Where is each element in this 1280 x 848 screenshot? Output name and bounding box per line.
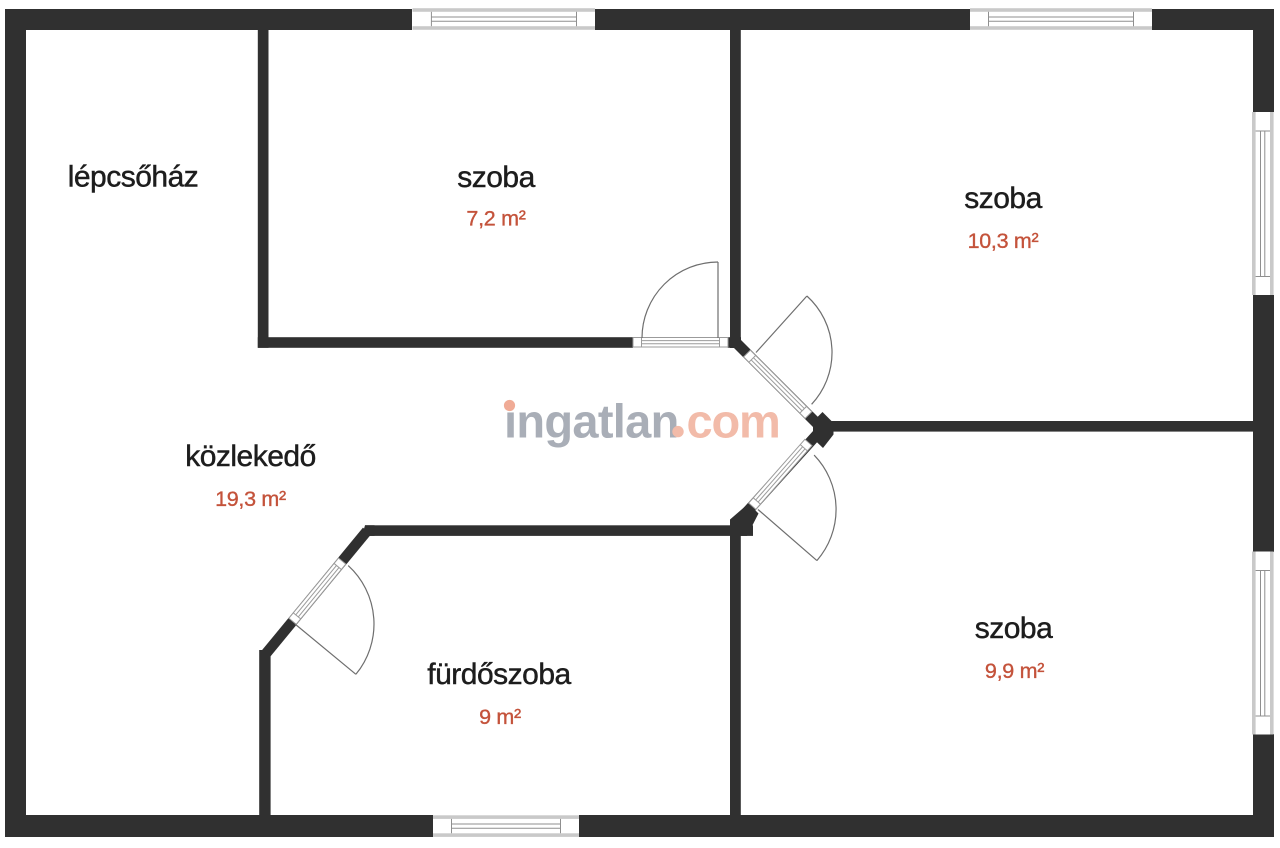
svg-text:9 m²: 9 m² <box>479 705 521 729</box>
svg-text:közlekedő: közlekedő <box>185 440 316 473</box>
svg-text:7,2 m²: 7,2 m² <box>466 207 525 231</box>
svg-text:szoba: szoba <box>457 161 535 194</box>
svg-text:9,9 m²: 9,9 m² <box>985 659 1044 683</box>
svg-text:10,3 m²: 10,3 m² <box>968 229 1039 253</box>
svg-text:com: com <box>687 395 780 448</box>
svg-text:szoba: szoba <box>964 182 1042 215</box>
svg-text:19,3 m²: 19,3 m² <box>215 487 286 511</box>
svg-text:ıngatlan: ıngatlan <box>504 395 679 448</box>
svg-text:lépcsőház: lépcsőház <box>68 161 199 194</box>
svg-text:szoba: szoba <box>975 612 1053 645</box>
svg-text:fürdőszoba: fürdőszoba <box>427 658 571 691</box>
